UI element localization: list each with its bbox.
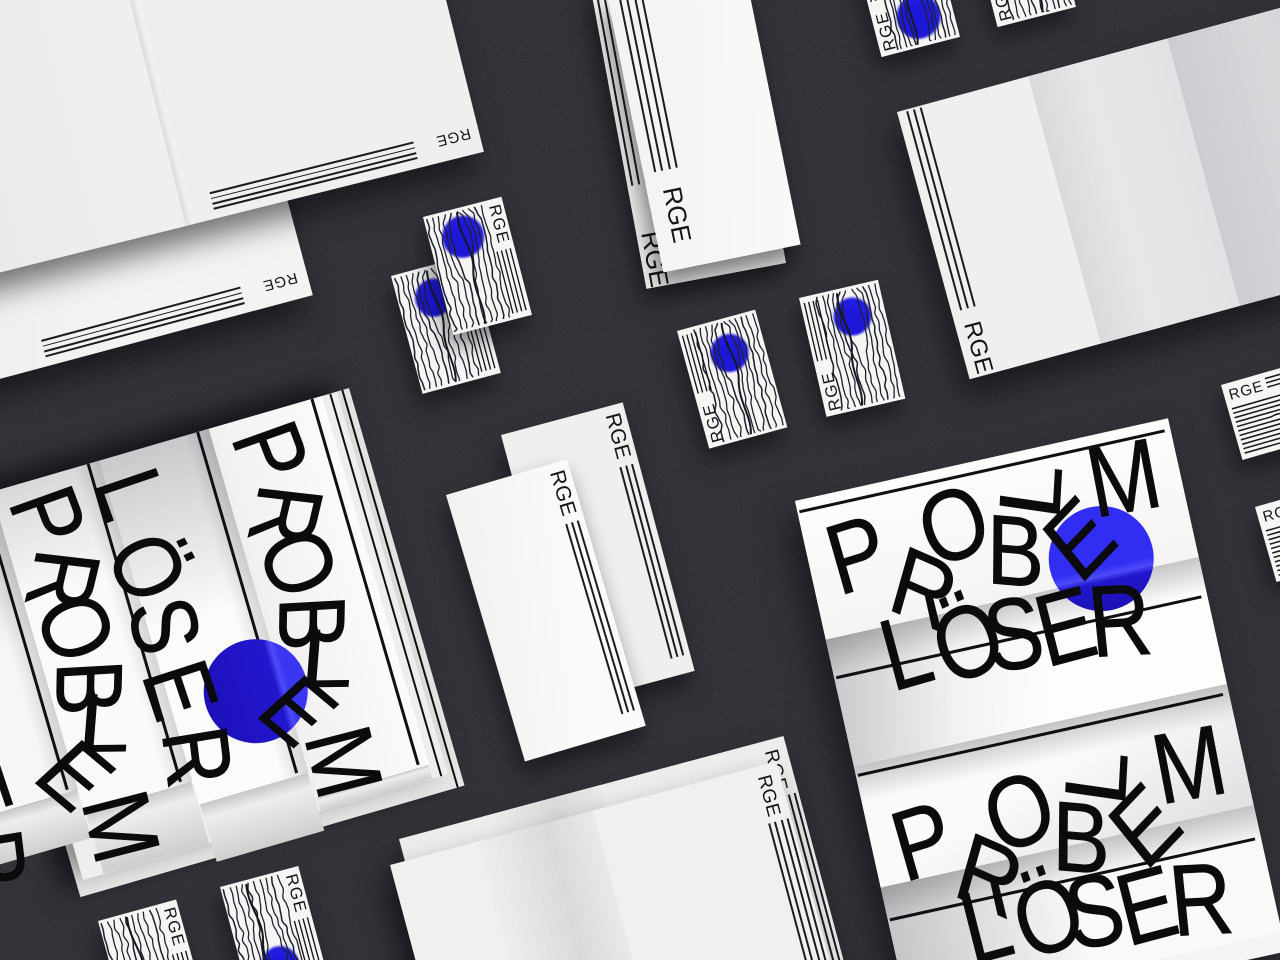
svg-text:RGE: RGE (1227, 378, 1266, 404)
svg-text:RGE: RGE (1260, 500, 1280, 526)
